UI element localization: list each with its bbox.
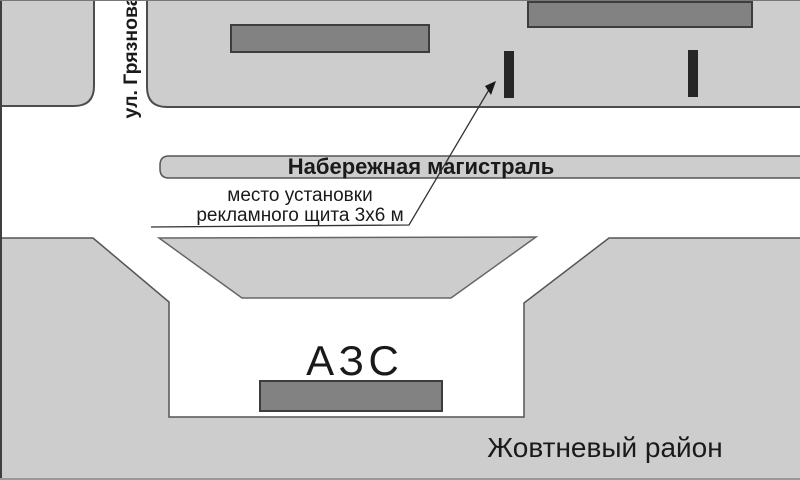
svg-text:Жовтневый район: Жовтневый район: [487, 432, 722, 463]
svg-text:АЗС: АЗС: [306, 337, 404, 384]
svg-text:Набережная магистраль: Набережная магистраль: [288, 154, 555, 179]
svg-text:ул. Грязнова: ул. Грязнова: [120, 0, 142, 119]
svg-text:рекламного щита 3х6 м: рекламного щита 3х6 м: [196, 205, 403, 226]
svg-text:место установки: место установки: [227, 185, 372, 206]
